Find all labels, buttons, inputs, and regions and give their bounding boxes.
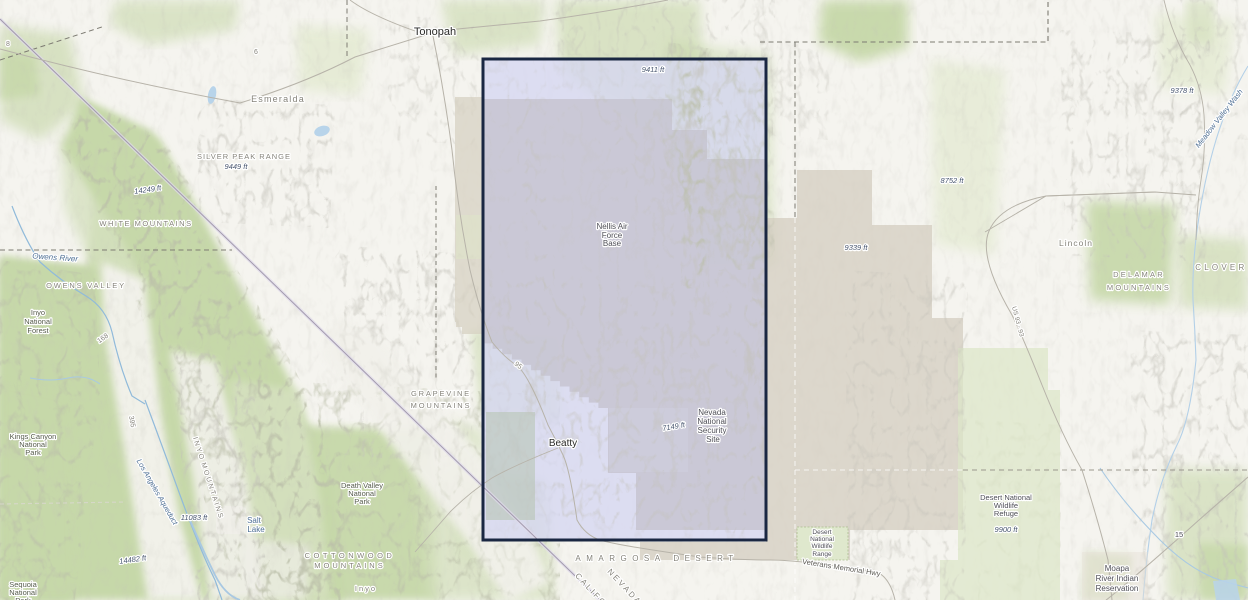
svg-text:9449 ft: 9449 ft	[225, 162, 249, 171]
svg-text:MOUNTAINS: MOUNTAINS	[314, 561, 385, 570]
svg-text:National: National	[810, 536, 834, 543]
svg-text:Reservation: Reservation	[1096, 584, 1139, 593]
svg-text:6: 6	[254, 49, 258, 56]
svg-text:11083 ft: 11083 ft	[181, 513, 208, 522]
svg-text:COTTONWOOD: COTTONWOOD	[305, 551, 396, 560]
svg-text:Tonopah: Tonopah	[414, 26, 456, 38]
svg-text:8752 ft: 8752 ft	[941, 176, 965, 185]
svg-text:WHITE MOUNTAINS: WHITE MOUNTAINS	[99, 219, 192, 228]
svg-text:Salt: Salt	[247, 516, 262, 525]
svg-text:Beatty: Beatty	[549, 438, 577, 449]
svg-text:River Indian: River Indian	[1096, 574, 1139, 583]
svg-text:AMARGOSA DESERT: AMARGOSA DESERT	[575, 554, 738, 563]
svg-text:9900 ft: 9900 ft	[995, 525, 1019, 534]
svg-text:9411 ft: 9411 ft	[642, 65, 665, 74]
svg-text:Security: Security	[698, 426, 727, 435]
svg-text:MOUNTAINS: MOUNTAINS	[411, 401, 472, 410]
svg-text:Range: Range	[812, 551, 832, 558]
svg-text:Site: Site	[706, 435, 720, 444]
svg-text:9339 ft: 9339 ft	[845, 243, 869, 252]
svg-text:Lake: Lake	[247, 525, 265, 534]
svg-text:National: National	[24, 317, 52, 326]
svg-text:Base: Base	[603, 239, 622, 248]
svg-text:C L O V E R: C L O V E R	[1195, 263, 1245, 272]
svg-text:15: 15	[1175, 530, 1183, 539]
svg-text:Moapa: Moapa	[1105, 564, 1130, 573]
svg-text:Desert: Desert	[812, 529, 831, 536]
svg-text:DELAMAR: DELAMAR	[1113, 270, 1165, 279]
svg-text:Nellis Air: Nellis Air	[596, 222, 627, 231]
svg-text:Wildlife: Wildlife	[812, 543, 833, 550]
svg-text:8: 8	[6, 41, 10, 48]
svg-text:Forest: Forest	[27, 326, 49, 335]
svg-text:Park: Park	[354, 497, 370, 506]
svg-text:Inyo: Inyo	[31, 308, 45, 317]
svg-text:Lincoln: Lincoln	[1059, 238, 1093, 248]
svg-text:SILVER PEAK RANGE: SILVER PEAK RANGE	[197, 152, 291, 161]
svg-text:Park: Park	[25, 448, 41, 457]
svg-text:OWENS VALLEY: OWENS VALLEY	[46, 281, 126, 290]
svg-text:Esmeralda: Esmeralda	[251, 94, 305, 104]
svg-text:Park: Park	[15, 596, 31, 600]
svg-text:MOUNTAINS: MOUNTAINS	[1107, 283, 1171, 292]
svg-text:9378 ft: 9378 ft	[1171, 86, 1195, 95]
svg-text:GRAPEVINE: GRAPEVINE	[411, 389, 471, 398]
svg-text:Refuge: Refuge	[994, 509, 1018, 518]
svg-text:Nevada: Nevada	[698, 408, 726, 417]
svg-text:National: National	[697, 417, 727, 426]
svg-text:Inyo: Inyo	[355, 584, 377, 593]
